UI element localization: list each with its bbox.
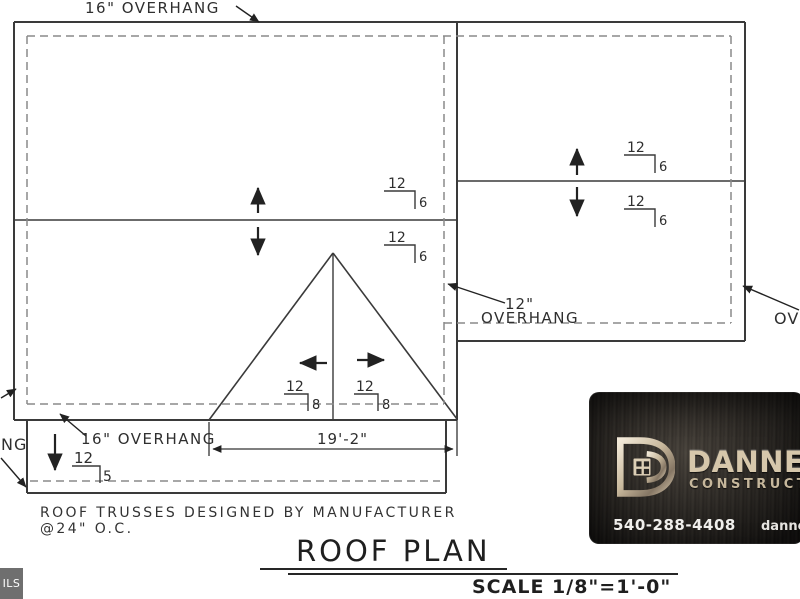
slope-bracket-main-lower — [384, 245, 415, 263]
top-overhang-leader — [236, 6, 259, 22]
company-name-partial: DANNE — [687, 445, 800, 479]
title-underline-secondary — [288, 573, 678, 575]
slope-bracket-wing-lower — [624, 209, 655, 227]
side-overhang-word-label: OVERHANG — [481, 309, 579, 327]
gable-left-hip — [209, 253, 333, 420]
slope-run-gable-right: 12 — [356, 379, 374, 395]
slope-bracket-gable-left — [284, 394, 308, 411]
sheet-scale: SCALE 1/8"=1'-0" — [472, 576, 671, 598]
corner-nav-tab-label: ILS — [3, 577, 21, 590]
slope-run-main-upper: 12 — [388, 176, 406, 192]
gable-dimension-text: 19'-2" — [317, 430, 368, 448]
top-overhang-label: 16" OVERHANG — [85, 0, 220, 17]
gable-right-hip — [333, 253, 457, 419]
company-website-partial: danne — [761, 519, 800, 534]
slope-rise-wing-lower: 6 — [659, 214, 667, 229]
truss-note-line1: ROOF TRUSSES DESIGNED BY MANUFACTURER — [40, 505, 457, 521]
slope-bracket-wing-upper — [624, 155, 655, 173]
company-logo-card: DANNE CONSTRUCT 540-288-4408 danne — [589, 392, 800, 544]
slope-run-wing-upper: 12 — [627, 140, 645, 156]
truss-note-line2: @24" O.C. — [40, 521, 133, 537]
company-phone: 540-288-4408 — [613, 516, 736, 534]
slope-rise-wing-upper: 6 — [659, 160, 667, 175]
slope-run-gable-left: 12 — [286, 379, 304, 395]
sheet-title: ROOF PLAN — [296, 534, 491, 568]
slope-run-main-lower: 12 — [388, 230, 406, 246]
slope-rise-main-lower: 6 — [419, 250, 427, 265]
company-monogram-icon — [609, 436, 675, 498]
roof-plan-sheet: 12 6 12 6 12 6 12 6 12 8 12 8 12 5 16" O… — [0, 0, 800, 599]
corner-nav-tab[interactable]: ILS — [0, 568, 23, 599]
bottom-overhang-label: 16" OVERHANG — [81, 430, 216, 448]
slope-bracket-gable-right — [354, 394, 378, 411]
slope-run-wing-lower: 12 — [627, 194, 645, 210]
left-edge-partial-label: NG — [1, 435, 27, 454]
slope-rise-main-upper: 6 — [419, 196, 427, 211]
slope-rise-gable-left: 8 — [312, 398, 320, 413]
right-edge-partial-label: OV — [774, 309, 799, 328]
gable-triangle — [209, 253, 457, 420]
slope-bracket-main-upper — [384, 191, 415, 209]
slope-run-porch: 12 — [74, 449, 93, 467]
title-underline-primary — [260, 568, 507, 570]
company-subtitle-partial: CONSTRUCT — [689, 477, 800, 492]
right-edge-leader — [743, 286, 799, 310]
slope-rise-porch: 5 — [103, 469, 112, 485]
left-lower-leader — [1, 458, 26, 487]
slope-rise-gable-right: 8 — [382, 398, 390, 413]
